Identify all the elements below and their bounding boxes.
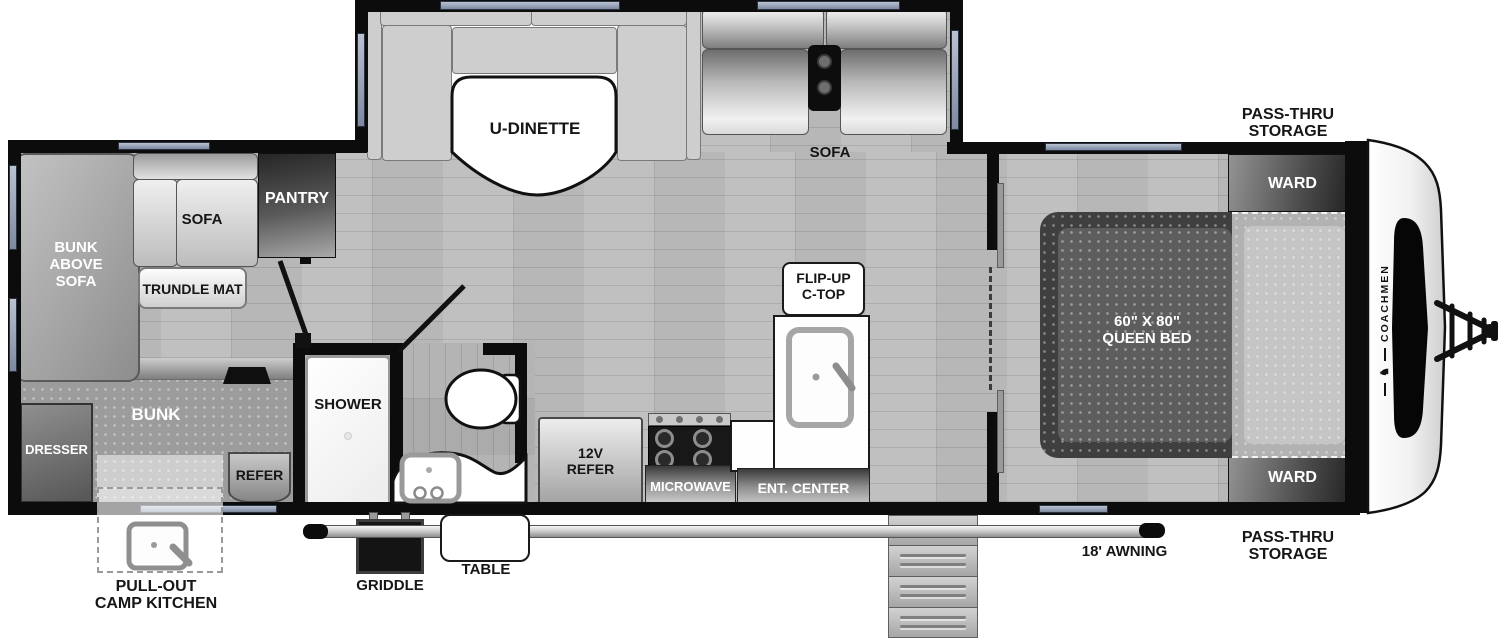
coachmen-brand-mark: ♞ COACHMEN [1377,247,1393,413]
dinette-side-panel-right [686,8,701,160]
entry-step-2 [888,576,978,608]
dinette-bench-back [452,27,617,74]
sofa-back-left [702,8,824,49]
stove-knob-3 [696,416,703,423]
step-groove [900,594,967,597]
shower-drain [344,432,352,440]
step-groove [900,616,967,619]
u-dinette-label: U-DINETTE [478,120,592,139]
wall-shower-left [293,343,305,512]
pass-thru-storage-bottom-label-line1: PASS-THRU [1218,529,1358,547]
step-groove [900,585,967,588]
sofa-slideout-label: SOFA [800,145,860,162]
hitch-a-frame [1437,303,1490,359]
wall-bath-right [515,343,527,463]
step-groove [900,563,967,566]
wall-front [1345,141,1368,513]
kitchen-counter-ext [730,420,777,472]
ward-bottom-label: WARD [1228,469,1357,487]
hitch-coupler [1483,324,1497,338]
flip-up-ctop-label-line2: C-TOP [782,287,865,302]
entry-step-3 [888,607,978,638]
rear-sofa-back [133,153,258,180]
dinette-side-panel-left [367,8,382,160]
bunk-above-sofa-label-line2: ABOVE [20,257,132,274]
sofa-cupholder-2 [817,80,832,95]
stove-burner-2 [693,429,712,448]
stove-knob-1 [656,416,663,423]
stove-knob-2 [676,416,683,423]
table-label: TABLE [442,562,530,579]
kitchen-counter [773,315,870,472]
awning-rail [305,525,1163,538]
partition-door-dashed-track [989,267,992,390]
camp-kitchen-outline [97,487,223,573]
wall-shower-right [390,343,403,512]
pantry-foot [300,257,311,264]
griddle-label: GRIDDLE [340,578,440,595]
sofa-seat-left [702,49,809,135]
flip-up-ctop-label-line1: FLIP-UP [782,271,865,286]
queen-bed-label-line1: 60" X 80" [1083,314,1211,331]
rv-floorplan: PASS-THRU STORAGE PASS-THRU STORAGE WARD… [0,0,1498,638]
awning-end-cap-left [303,524,328,539]
bunk-label: BUNK [118,406,194,425]
ward-top-label: WARD [1228,175,1357,193]
hitch-jack [1491,321,1498,341]
queen-bed-head-inner [1244,226,1345,444]
window-bedroom-top [1045,143,1182,151]
microwave-label: MICROWAVE [645,480,736,494]
trundle-mat-label: TRUNDLE MAT [138,282,247,297]
shower-label: SHOWER [305,397,391,414]
pass-thru-storage-bottom-label-line2: STORAGE [1218,546,1358,564]
partition-door-bottom [997,390,1004,473]
window-top-left [118,142,210,150]
dresser-label: DRESSER [20,443,93,457]
pass-thru-storage-top-label-line2: STORAGE [1218,123,1358,141]
refer-12v-label-line1: 12V [538,446,643,461]
coachmen-emblem-icon: ♞ [1380,367,1391,377]
pull-out-camp-kitchen-label-line2: CAMP KITCHEN [76,595,236,613]
sofa-back-right [826,8,947,49]
ent-center-label: ENT. CENTER [737,481,870,496]
brand-dash [1384,383,1386,396]
sofa-rear-label: SOFA [160,212,244,229]
stove-knob-4 [716,416,723,423]
dinette-bench-left [382,25,452,161]
partition-door-top [997,183,1004,268]
bunk-above-sofa-label-line3: SOFA [20,274,132,291]
sofa-seat-right [840,49,947,135]
pull-out-camp-kitchen-label-line1: PULL-OUT [76,578,236,596]
window-slideout-top-dinette [440,1,620,10]
window-rear-upper [9,165,17,250]
window-slideout-left [357,33,365,127]
window-rear-lower [9,298,17,372]
queen-bed-label-line2: QUEEN BED [1083,331,1211,348]
coachmen-brand-text: COACHMEN [1379,264,1391,342]
dinette-bench-right [617,25,687,161]
wall-bath-top [293,343,403,355]
picnic-table [440,514,530,562]
window-bedroom-bottom [1039,505,1108,513]
bunk-step-mat [223,367,271,384]
refer-bunk-label: REFER [228,468,291,483]
window-slideout-top-sofa [757,1,900,10]
brand-dash [1384,348,1386,361]
pantry-label: PANTRY [258,190,336,208]
pass-thru-storage-top-label-line1: PASS-THRU [1218,106,1358,124]
awning-label: 18' AWNING [1052,544,1197,561]
sofa-cupholder-1 [817,54,832,69]
refer-12v-label-line2: REFER [538,462,643,477]
awning-end-cap-right [1139,523,1165,538]
front-cap-lens [1392,218,1428,438]
stove-burner-1 [655,429,674,448]
bunk-above-sofa-label-line1: BUNK [20,240,132,257]
window-slideout-right [951,30,959,130]
entry-step-1 [888,545,978,577]
step-groove [900,554,967,557]
step-groove [900,625,967,628]
